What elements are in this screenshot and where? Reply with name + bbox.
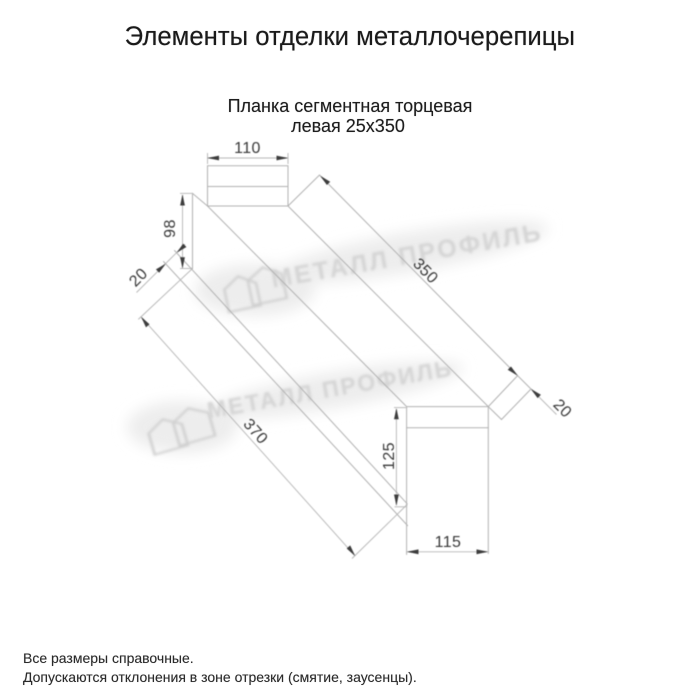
svg-text:98: 98 bbox=[162, 219, 179, 238]
svg-text:20: 20 bbox=[126, 265, 151, 290]
svg-text:110: 110 bbox=[234, 140, 261, 157]
svg-text:20: 20 bbox=[550, 396, 575, 421]
svg-text:115: 115 bbox=[435, 534, 462, 551]
svg-text:125: 125 bbox=[381, 442, 398, 470]
svg-text:370: 370 bbox=[239, 416, 270, 448]
